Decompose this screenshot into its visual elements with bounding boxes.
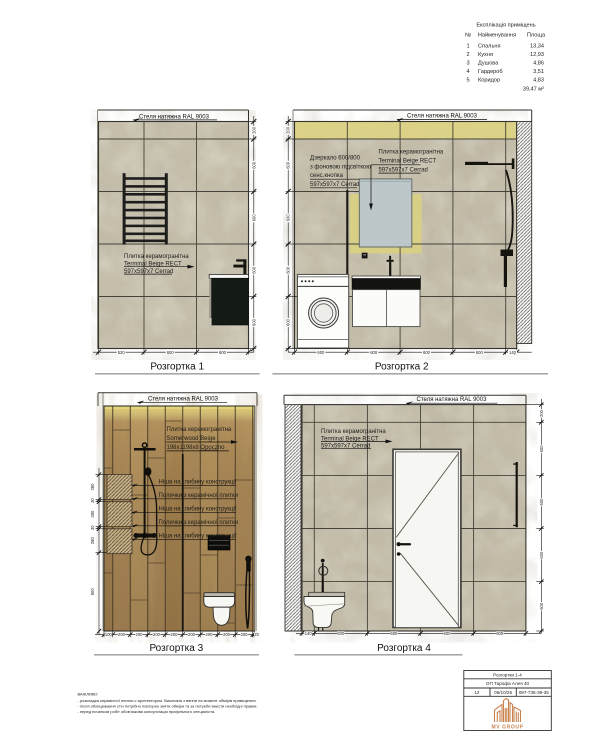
svg-text:600: 600 (251, 318, 256, 326)
svg-text:900: 900 (90, 588, 95, 596)
svg-text:5: 5 (466, 78, 469, 84)
svg-text:- після облицювання стін потрі: - після облицювання стін потрібно повтор… (78, 703, 258, 708)
svg-text:600: 600 (251, 266, 256, 274)
svg-text:140: 140 (509, 350, 517, 355)
svg-text:Ніша на глибину конструкції: Ніша на глибину конструкції (159, 534, 237, 540)
svg-text:06/10/25: 06/10/25 (494, 690, 512, 695)
svg-text:Плитка керамогранітна: Плитка керамогранітна (124, 254, 189, 260)
svg-text:ОП Тарофа Алея 40: ОП Тарофа Алея 40 (486, 681, 530, 686)
svg-text:30: 30 (90, 498, 95, 503)
svg-text:Стеля натяжна RAL 9003: Стеля натяжна RAL 9003 (139, 114, 210, 120)
svg-text:597х597х7 Cerrad: 597х597х7 Cerrad (310, 182, 359, 188)
svg-text:Кухня: Кухня (478, 52, 493, 58)
svg-text:200: 200 (539, 409, 544, 417)
svg-text:140: 140 (305, 631, 313, 636)
svg-text:600: 600 (496, 631, 504, 636)
svg-text:600: 600 (167, 350, 175, 355)
svg-text:2: 2 (466, 52, 469, 58)
svg-text:ВАЖЛИВО: ВАЖЛИВО (78, 692, 98, 697)
svg-text:4,86: 4,86 (533, 61, 544, 67)
svg-text:Плитка керамогранітна: Плитка керамогранітна (167, 427, 232, 433)
svg-text:280: 280 (90, 537, 95, 545)
svg-text:600: 600 (370, 350, 378, 355)
svg-text:- перед початком робіт обов'яз: - перед початком робіт обов'язкова консу… (78, 709, 216, 714)
svg-text:600: 600 (317, 350, 325, 355)
svg-text:12,93: 12,93 (530, 52, 544, 58)
svg-text:600: 600 (286, 214, 291, 222)
svg-text:39,47 м²: 39,47 м² (523, 87, 544, 93)
svg-text:30: 30 (90, 525, 95, 530)
svg-text:600: 600 (539, 602, 544, 610)
svg-text:097-735-39-35: 097-735-39-35 (519, 690, 550, 695)
svg-text:Спальня: Спальня (478, 44, 500, 50)
svg-text:200: 200 (206, 632, 214, 637)
svg-text:з фоновою підсвіткою: з фоновою підсвіткою (310, 165, 371, 171)
svg-text:600: 600 (390, 631, 398, 636)
svg-text:Стеля натяжна RAL 9003: Стеля натяжна RAL 9003 (148, 397, 219, 403)
svg-text:100: 100 (105, 632, 113, 637)
svg-text:3: 3 (466, 61, 469, 67)
svg-text:сенс.кнопка: сенс.кнопка (310, 173, 344, 179)
svg-text:Гардероб: Гардероб (478, 69, 503, 75)
svg-text:Коридор: Коридор (478, 78, 500, 84)
svg-text:№: № (465, 33, 471, 39)
svg-text:600: 600 (539, 445, 544, 453)
svg-text:20: 20 (254, 632, 259, 637)
svg-text:Terminal Beige RECT: Terminal Beige RECT (379, 159, 437, 165)
svg-text:Плитка керамогранітна: Плитка керамогранітна (379, 150, 444, 156)
svg-text:Стеля натяжна RAL 9003: Стеля натяжна RAL 9003 (417, 397, 488, 403)
svg-text:200: 200 (118, 632, 126, 637)
svg-text:Площа: Площа (527, 33, 546, 39)
svg-text:600: 600 (251, 161, 256, 169)
svg-text:200: 200 (153, 632, 161, 637)
svg-text:Душова: Душова (478, 61, 499, 67)
svg-text:Розгортка 2: Розгортка 2 (375, 361, 429, 372)
svg-text:Полички з керамічної плитки: Полички з керамічної плитки (159, 520, 239, 526)
svg-text:200: 200 (241, 632, 249, 637)
svg-text:Експлікація приміщень: Експлікація приміщень (476, 23, 535, 29)
svg-text:4,83: 4,83 (533, 78, 544, 84)
svg-text:Ніша на глибину конструкції: Ніша на глибину конструкції (159, 480, 237, 486)
svg-text:597х597х7 Cerrad: 597х597х7 Cerrad (379, 167, 428, 173)
svg-text:280: 280 (90, 483, 95, 491)
svg-text:280: 280 (90, 510, 95, 518)
svg-text:Somerwood Beige: Somerwood Beige (167, 436, 217, 442)
svg-text:12: 12 (474, 690, 480, 695)
svg-text:600: 600 (286, 318, 291, 326)
svg-text:600: 600 (539, 498, 544, 506)
svg-text:198х1198х8 Opoczno: 198х1198х8 Opoczno (167, 445, 226, 451)
svg-text:600: 600 (444, 631, 452, 636)
svg-text:Стеля натяжна RAL 9003: Стеля натяжна RAL 9003 (407, 113, 478, 119)
svg-text:Дзеркало 600/800: Дзеркало 600/800 (310, 156, 361, 162)
svg-text:600: 600 (286, 161, 291, 169)
svg-text:Розгортки 1-4: Розгортки 1-4 (493, 672, 522, 677)
svg-text:1: 1 (466, 44, 469, 50)
svg-text:600: 600 (251, 214, 256, 222)
svg-text:3,51: 3,51 (533, 69, 544, 75)
svg-text:200: 200 (171, 632, 179, 637)
svg-text:- розкладка керамічної плитки: - розкладка керамічної плитки с архітект… (78, 698, 257, 703)
svg-text:4: 4 (466, 69, 469, 75)
svg-text:Полички з керамічної плитки: Полички з керамічної плитки (159, 493, 239, 499)
svg-text:13,34: 13,34 (530, 44, 544, 50)
svg-text:Розгортка 1: Розгортка 1 (150, 361, 204, 372)
svg-text:520: 520 (118, 350, 126, 355)
svg-text:600: 600 (539, 551, 544, 559)
svg-text:MV GROUP: MV GROUP (491, 725, 523, 731)
svg-text:200: 200 (286, 126, 291, 134)
svg-text:600: 600 (286, 266, 291, 274)
svg-text:200: 200 (188, 632, 196, 637)
svg-text:600: 600 (423, 350, 431, 355)
svg-text:Плитка керамогранітна: Плитка керамогранітна (321, 429, 386, 435)
svg-text:Розгортка 4: Розгортка 4 (377, 643, 431, 654)
svg-text:600: 600 (337, 631, 345, 636)
svg-text:Найменування: Найменування (478, 32, 516, 39)
svg-text:600: 600 (219, 350, 227, 355)
svg-text:Розгортка 3: Розгортка 3 (149, 643, 203, 654)
svg-text:200: 200 (251, 126, 256, 134)
svg-text:200: 200 (223, 632, 231, 637)
svg-text:Ніша на глибину конструкції: Ніша на глибину конструкції (159, 507, 237, 513)
svg-text:600: 600 (476, 350, 484, 355)
svg-text:200: 200 (136, 632, 144, 637)
